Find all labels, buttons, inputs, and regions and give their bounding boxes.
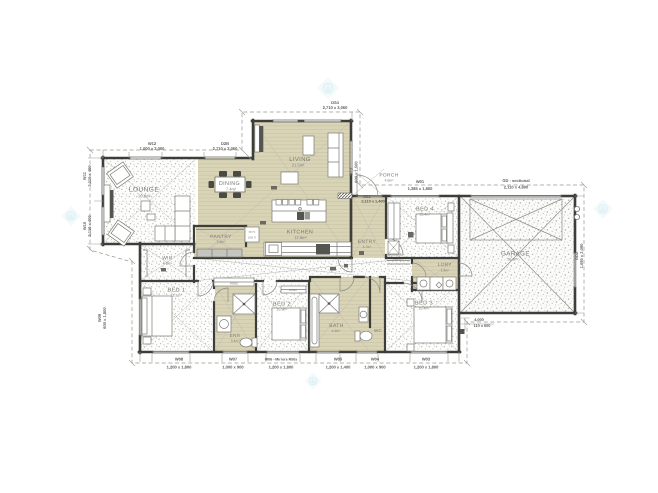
svg-text:4.7m²: 4.7m²	[363, 245, 373, 249]
svg-text:12.8m²: 12.8m²	[294, 235, 307, 240]
svg-text:1.8m²: 1.8m²	[441, 269, 451, 273]
svg-text:110 x 600: 110 x 600	[474, 324, 491, 328]
svg-text:FR S: FR S	[249, 230, 256, 234]
svg-text:GD - sectional: GD - sectional	[502, 178, 529, 183]
svg-text:10.9m²: 10.9m²	[276, 308, 288, 312]
svg-text:1,095 x 2,090: 1,095 x 2,090	[579, 243, 584, 269]
svg-text:ROBE: ROBE	[230, 282, 239, 286]
svg-text:2,110 x 1,400: 2,110 x 1,400	[361, 200, 384, 204]
svg-text:W04: W04	[371, 357, 380, 362]
svg-text:10.4m²: 10.4m²	[419, 213, 431, 217]
svg-text:ROBE: ROBE	[289, 288, 298, 292]
svg-text:4,000: 4,000	[474, 318, 484, 322]
svg-text:2,710 x 2,060: 2,710 x 2,060	[213, 146, 239, 151]
svg-text:2,110 x 400: 2,110 x 400	[87, 215, 92, 237]
svg-text:LDRY: LDRY	[438, 262, 452, 267]
svg-text:DS1: DS1	[363, 195, 371, 199]
svg-text:1,000 x 900: 1,000 x 900	[364, 365, 386, 370]
svg-text:W07: W07	[229, 357, 238, 362]
svg-text:10.4m²: 10.4m²	[418, 307, 430, 311]
svg-text:1,000 x 900: 1,000 x 900	[222, 365, 244, 370]
svg-text:1,200 x 1,800: 1,200 x 1,800	[269, 365, 295, 370]
svg-text:13.2m²: 13.2m²	[170, 294, 182, 298]
svg-text:2,710 x 3,060: 2,710 x 3,060	[323, 105, 349, 110]
svg-text:W05: W05	[334, 357, 343, 362]
svg-text:4.7m²: 4.7m²	[163, 262, 173, 266]
svg-text:600 x 1,800: 600 x 1,800	[102, 307, 107, 329]
svg-text:1,200 x 1,400: 1,200 x 1,400	[326, 365, 352, 370]
svg-text:21.5m²: 21.5m²	[292, 163, 305, 168]
svg-text:20.9m²: 20.9m²	[138, 194, 151, 199]
svg-text:W06 - Mirrors R50s: W06 - Mirrors R50s	[265, 358, 298, 362]
svg-text:2,110 x 4,800: 2,110 x 4,800	[504, 185, 529, 190]
svg-text:LOUNGE: LOUNGE	[129, 187, 159, 194]
svg-text:4.9m²: 4.9m²	[385, 179, 395, 183]
svg-text:2.9m²: 2.9m²	[217, 240, 227, 244]
svg-text:7.4m²: 7.4m²	[226, 187, 237, 192]
svg-text:W08: W08	[175, 357, 184, 362]
svg-text:36.9m²: 36.9m²	[507, 258, 519, 262]
svg-text:ENS: ENS	[230, 333, 241, 338]
svg-text:1,200 x 1,800: 1,200 x 1,800	[414, 365, 440, 370]
svg-text:GARAGE: GARAGE	[501, 251, 530, 258]
svg-text:3.4m²: 3.4m²	[231, 339, 241, 343]
svg-text:W01: W01	[416, 179, 425, 184]
svg-text:2,110 x 400: 2,110 x 400	[87, 165, 92, 187]
svg-text:1,385 x 1,800: 1,385 x 1,800	[408, 186, 434, 191]
svg-text:1,200 x 1,800: 1,200 x 1,800	[167, 365, 193, 370]
svg-text:W03: W03	[422, 357, 431, 362]
svg-text:4.9m²: 4.9m²	[332, 329, 342, 333]
svg-text:DW S: DW S	[248, 236, 256, 240]
svg-text:WC: WC	[374, 328, 382, 333]
svg-text:1,000 x 2,000: 1,000 x 2,000	[140, 146, 166, 151]
svg-text:600 x 1,500: 600 x 1,500	[354, 161, 359, 183]
